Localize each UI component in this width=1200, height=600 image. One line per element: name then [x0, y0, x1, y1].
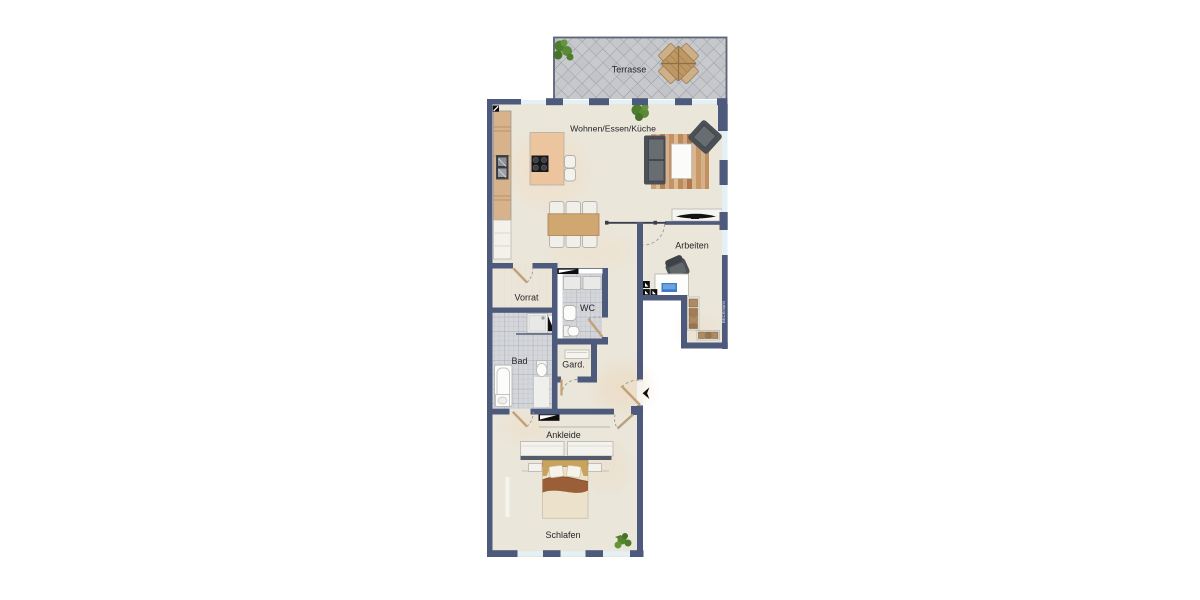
svg-text:Gard.: Gard. — [562, 360, 585, 370]
svg-text:WC: WC — [580, 303, 595, 313]
svg-text:Arbeiten: Arbeiten — [675, 240, 709, 250]
svg-text:Ankleide: Ankleide — [546, 430, 581, 440]
svg-text:Wohnen/Essen/Küche: Wohnen/Essen/Küche — [570, 123, 656, 133]
svg-text:Bad: Bad — [511, 356, 527, 366]
svg-text:Terrasse: Terrasse — [612, 65, 647, 75]
svg-text:BECKmann: BECKmann — [721, 300, 726, 323]
svg-text:Schlafen: Schlafen — [545, 530, 580, 540]
svg-text:Vorrat: Vorrat — [514, 293, 539, 303]
